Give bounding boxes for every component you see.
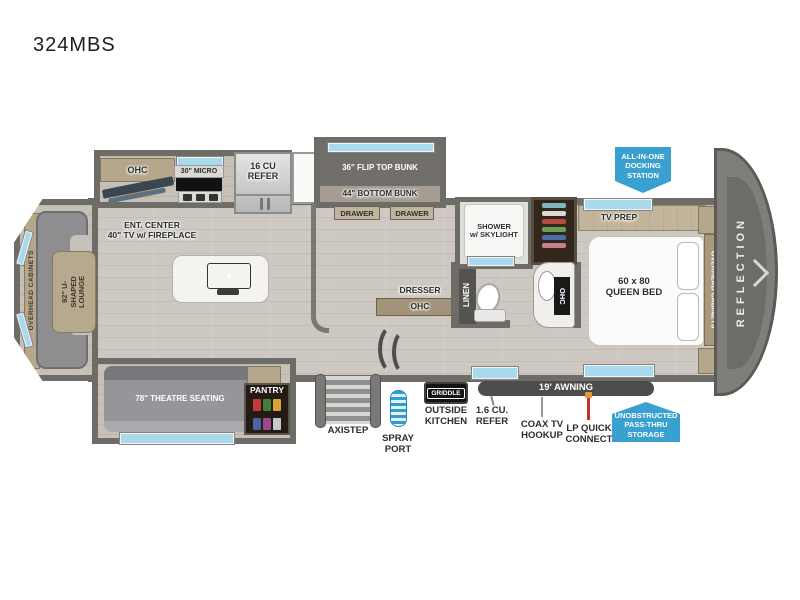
bottom-bunk-label: 44" BOTTOM BUNK — [343, 190, 418, 199]
axistep-rail-left — [315, 374, 326, 428]
lounge-label-box: 92" U-SHAPED LOUNGE — [52, 251, 96, 333]
brand-label: REFLECTION — [735, 217, 747, 327]
rear-lounge-slide: OVERHEAD CABINETS 92" U-SHAPED LOUNGE — [14, 199, 98, 381]
linen-label: LINEN — [463, 283, 472, 307]
docking-station-badge: ALL-IN-ONE DOCKING STATION — [615, 147, 671, 193]
theatre-label: 78" THEATRE SEATING — [135, 395, 224, 404]
outside-kitchen-label: OUTSIDE KITCHEN — [418, 406, 474, 427]
floorplan-title: 324MBS — [33, 34, 116, 57]
curved-partition-wall — [311, 203, 329, 333]
island-faucet-bar — [217, 289, 239, 295]
lp-label: LP QUICK CONNECT — [560, 424, 618, 445]
coax-pointer-line — [541, 397, 543, 417]
tv-prep-label: TV PREP — [584, 213, 654, 223]
brand-text-wrap: REFLECTION — [731, 151, 751, 393]
spray-port-label: SPRAY PORT — [368, 434, 428, 455]
axistep-steps — [318, 376, 378, 424]
bunk-slide: 36" FLIP TOP BUNK 44" BOTTOM BUNK — [314, 137, 446, 208]
kitchen-island — [172, 255, 269, 303]
pantry-items — [246, 398, 288, 436]
bottom-bunk: 44" BOTTOM BUNK — [320, 186, 440, 202]
axistep-rail-right — [370, 374, 381, 428]
flip-top-bunk-label: 36" FLIP TOP BUNK — [342, 164, 418, 173]
awning-bar: 19' AWNING — [478, 381, 654, 396]
kitchen-ohc-label: OHC — [128, 165, 148, 175]
hanging-clothes — [542, 211, 566, 216]
refer-door-split — [236, 194, 290, 196]
hanging-clothes — [542, 219, 566, 224]
spray-port-coil — [390, 390, 407, 427]
floorplan-canvas: 324MBS OVERHEAD CABINETS 92" U-SHAPED LO… — [0, 0, 800, 600]
pantry: PANTRY — [244, 383, 290, 435]
sink-faucet — [227, 274, 231, 278]
hanging-clothes — [542, 227, 566, 232]
ent-center-label: ENT. CENTER 40" TV w/ FIREPLACE — [96, 221, 208, 240]
cooktop-burners — [178, 191, 222, 203]
bath-wall-left — [451, 262, 459, 328]
pass-thru-storage-badge: UNOBSTRUCTED PASS-THRU STORAGE — [612, 402, 680, 442]
bedroom-window-bottom — [584, 365, 654, 377]
shower-room: SHOWER w/ SKYLIGHT — [455, 197, 533, 269]
sofa-front — [104, 421, 256, 432]
bunk-drawer-left: DRAWER — [334, 206, 380, 220]
refrigerator: 16 CU REFER — [234, 152, 292, 214]
theatre-label-wrap: 78" THEATRE SEATING — [104, 384, 256, 414]
small-refer-label: 1.6 CU. REFER — [468, 406, 516, 427]
refer-handle-right — [267, 198, 270, 210]
range-hood — [176, 178, 222, 191]
bath-vanity: OHC — [533, 262, 575, 328]
bunk-drawer-right: DRAWER — [390, 206, 434, 220]
queen-bed-label: 60 x 80 QUEEN BED — [597, 277, 671, 298]
pillow-top — [677, 242, 699, 290]
pillow-bottom — [677, 293, 699, 341]
front-cap: REFLECTION — [714, 148, 778, 396]
shower-glass — [468, 257, 514, 266]
shower-pan: SHOWER w/ SKYLIGHT — [464, 204, 524, 258]
theatre-sofa: 78" THEATRE SEATING — [104, 366, 256, 432]
theatre-window — [120, 433, 234, 444]
refrigerator-label: 16 CU REFER — [236, 161, 290, 181]
hanging-clothes — [542, 243, 566, 248]
kitchen-tall-cabinet — [292, 152, 316, 204]
pantry-top-cabinet — [247, 366, 281, 384]
lounge-label: 92" U-SHAPED LOUNGE — [61, 271, 87, 313]
theatre-slide: 78" THEATRE SEATING PANTRY — [92, 358, 296, 444]
vanity-ohc: OHC — [554, 277, 570, 315]
microwave: 30" MICRO — [174, 165, 224, 178]
bedroom-window-top — [584, 199, 652, 210]
pantry-label: PANTRY — [246, 386, 288, 396]
toilet-tank — [474, 309, 506, 322]
griddle: GRIDDLE — [424, 382, 468, 404]
lp-pointer-line — [587, 398, 590, 420]
hanging-clothes — [542, 203, 566, 208]
entry-door-swing-inner — [392, 329, 418, 375]
sofa-back — [104, 366, 256, 380]
wardrobe-closet — [531, 197, 577, 265]
shower-label: SHOWER w/ SKYLIGHT — [470, 223, 518, 240]
queen-bed: 60 x 80 QUEEN BED — [588, 236, 704, 346]
island-sink — [207, 263, 251, 289]
griddle-label: GRIDDLE — [427, 388, 464, 399]
hanging-clothes — [542, 235, 566, 240]
outside-kitchen-window — [472, 367, 518, 379]
microwave-label: 30" MICRO — [181, 168, 217, 175]
flip-top-bunk: 36" FLIP TOP BUNK — [320, 150, 440, 186]
refer-handle-left — [260, 198, 263, 210]
